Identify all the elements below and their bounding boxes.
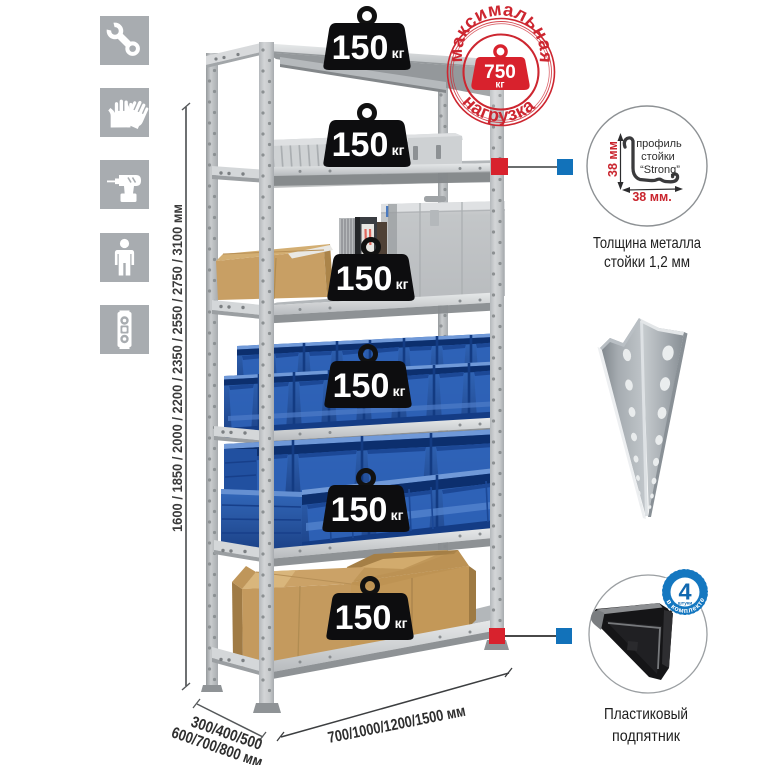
svg-text:подпятник: подпятник (612, 728, 681, 745)
svg-text:Толщина металла: Толщина металла (593, 235, 701, 252)
svg-text:38 мм: 38 мм (606, 141, 620, 177)
svg-text:38 мм.: 38 мм. (632, 190, 671, 204)
svg-text:кг: кг (395, 615, 408, 631)
svg-text:кг: кг (391, 507, 404, 523)
svg-text:150: 150 (332, 126, 389, 164)
svg-text:штуки: штуки (678, 602, 693, 607)
svg-text:150: 150 (331, 491, 388, 529)
svg-text:кг: кг (392, 45, 405, 61)
svg-text:Пластиковый: Пластиковый (604, 706, 688, 723)
svg-text:кг: кг (392, 142, 405, 158)
svg-text:кг: кг (396, 276, 409, 292)
svg-text:профиль: профиль (636, 138, 682, 150)
svg-text:стойки 1,2 мм: стойки 1,2 мм (604, 254, 690, 271)
svg-text:кг: кг (495, 80, 504, 91)
svg-text:150: 150 (335, 599, 392, 637)
svg-text:150: 150 (336, 260, 393, 298)
svg-text:1600 / 1850 / 2000 / 2200 / 23: 1600 / 1850 / 2000 / 2200 / 2350 / 2550 … (170, 204, 185, 532)
svg-text:150: 150 (332, 29, 389, 67)
svg-text:кг: кг (393, 383, 406, 399)
svg-text:стойки: стойки (641, 151, 675, 163)
svg-text:“Strong”: “Strong” (640, 164, 680, 176)
svg-text:150: 150 (333, 367, 390, 405)
